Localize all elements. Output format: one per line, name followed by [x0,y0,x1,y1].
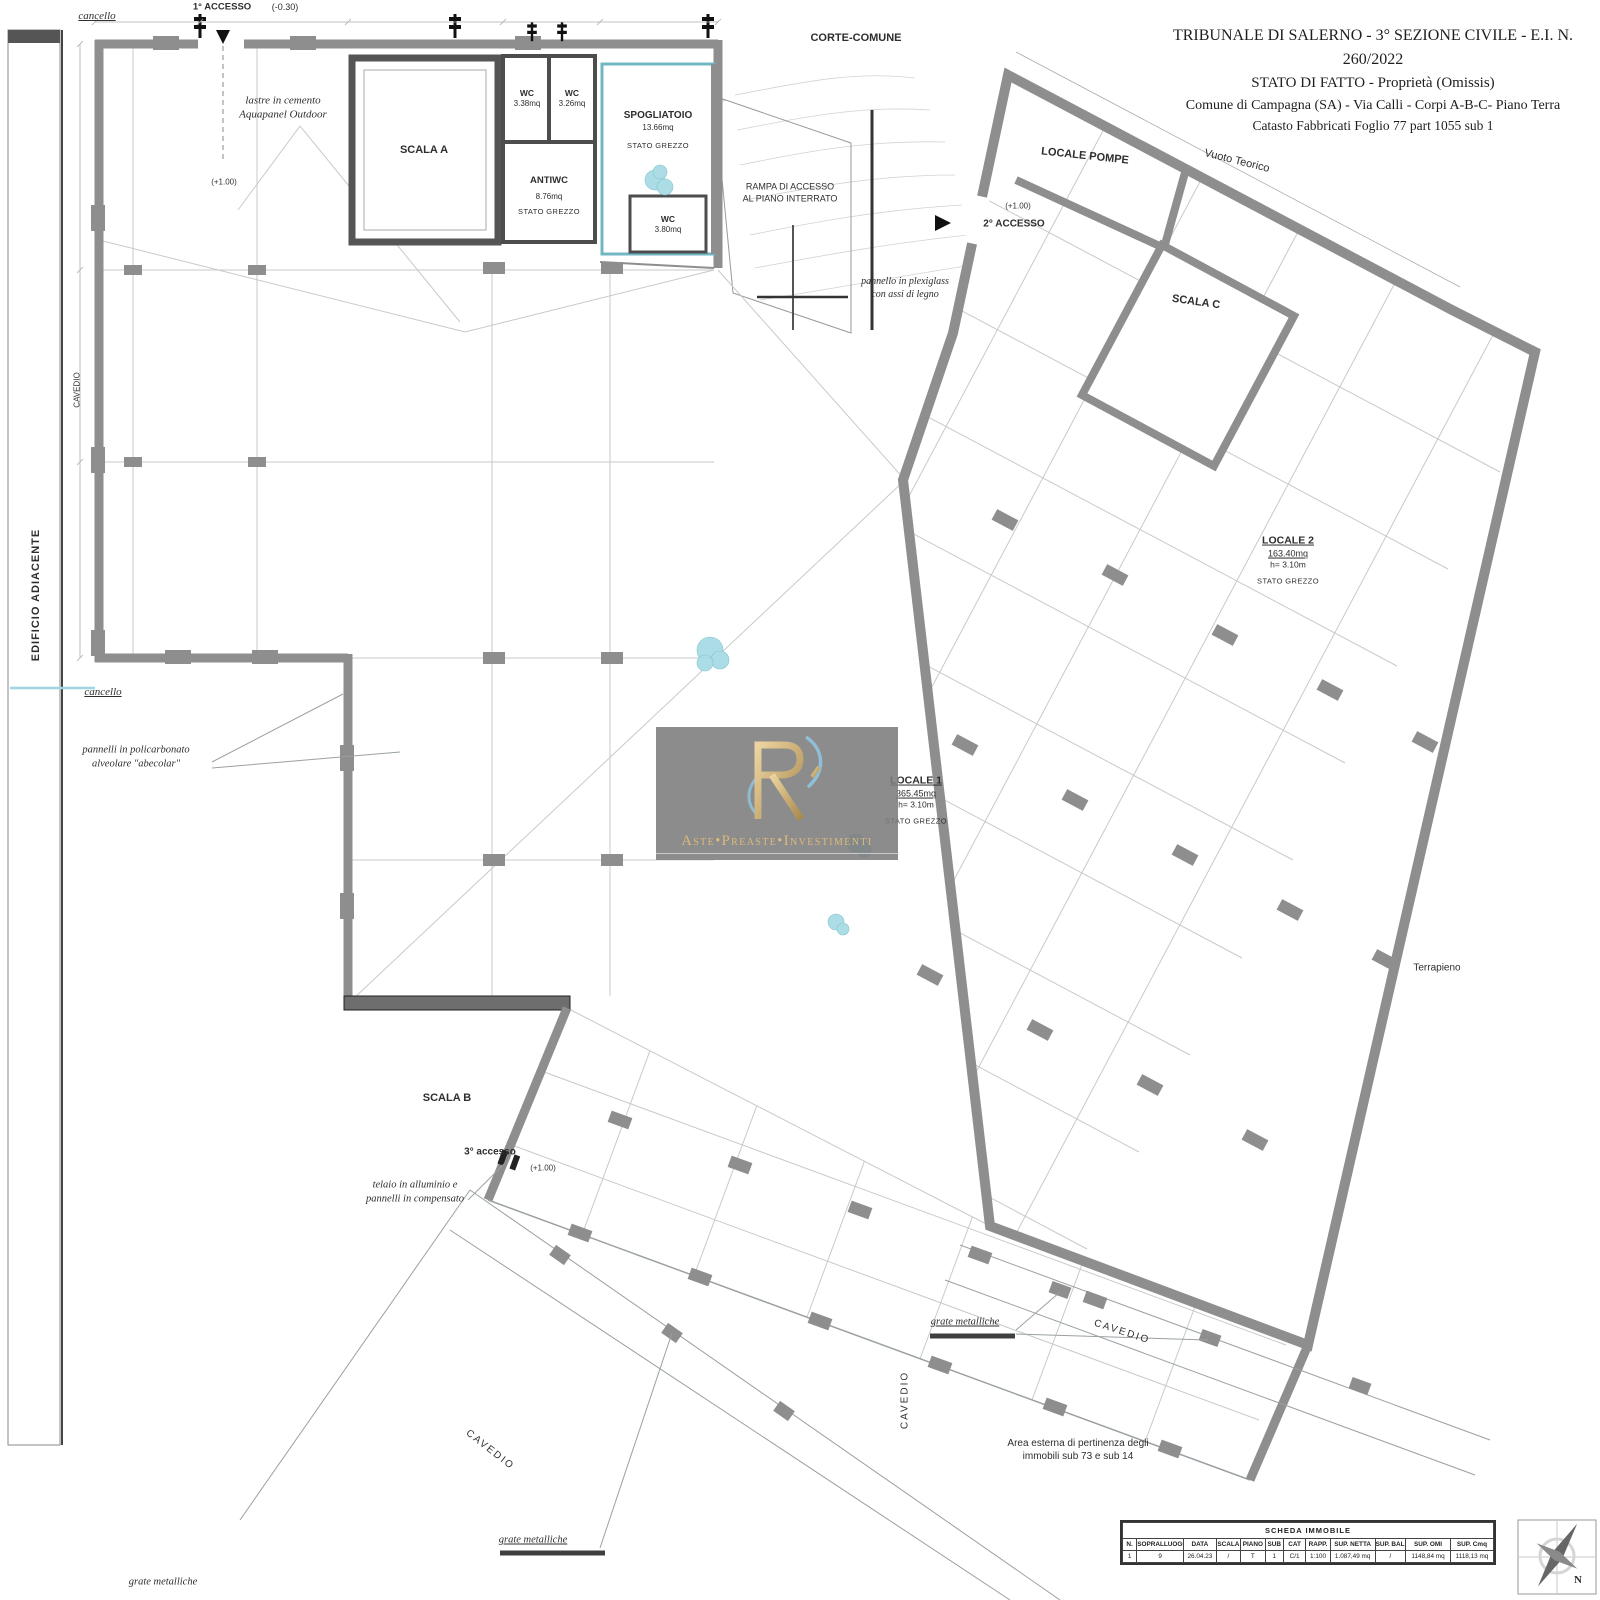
locale2-height: h= 3.10m [1257,560,1319,571]
rampa-1: RAMPA DI ACCESSO [743,181,838,193]
telaio-1: telaio in alluminio e [366,1178,464,1192]
scheda-cell: 1148,84 mq [1406,1551,1451,1563]
label-edificio-adiacente: EDIFICIO ADIACENTE [30,529,42,662]
plexi-2: con assi di legno [861,288,949,301]
title-line-4: Catasto Fabbricati Foglio 77 part 1055 s… [1148,116,1598,136]
accesso-2-arrow-icon [935,215,951,231]
plexi-1: pannello in plexiglass [861,275,949,288]
antiwc-status: STATO GREZZO [518,207,580,217]
label-accesso-2-quota: (+1.00) [1005,202,1031,211]
title-line-1: TRIBUNALE DI SALERNO - 3° SEZIONE CIVILE… [1148,24,1598,72]
watermark: Aste•Preaste•Investimenti [656,727,898,860]
walls-scala-c [1016,169,1294,466]
spogliatoio-status: STATO GREZZO [624,141,693,151]
label-accesso-1: 1° ACCESSO [193,2,251,13]
rampa-2: AL PIANO INTERRATO [743,193,838,205]
label-accesso-2: 2° ACCESSO [983,219,1044,230]
poli-2: alveolare "abecolar" [82,757,189,771]
label-telaio: telaio in alluminio e pannelli in compen… [366,1178,464,1205]
label-lastre: lastre in cemento Aquapanel Outdoor [239,94,327,123]
spogliatoio-name: SPOGLIATOIO [624,109,693,123]
scheda-header: DATA [1184,1539,1217,1551]
scheda-cell: C/1 [1283,1551,1305,1563]
label-cancello-top: cancello [78,10,115,22]
antiwc-area: 8.76mq [518,192,580,203]
label-lastre-2: Aquapanel Outdoor [239,108,327,122]
label-antiwc: ANTIWC 8.76mq STATO GREZZO [518,175,580,217]
label-scala-b: SCALA B [423,1092,471,1104]
wc2-name: WC [559,88,586,99]
scheda-header: SOPRALLUOGO [1137,1539,1184,1551]
label-wc2: WC 3.26mq [559,88,586,110]
title-block: TRIBUNALE DI SALERNO - 3° SEZIONE CIVILE… [1148,24,1598,136]
scheda-data-row: 1 9 26.04.23 / T 1 C/1 1:100 1.087,49 mq… [1123,1551,1494,1563]
scheda-cell: 9 [1137,1551,1184,1563]
locale2-name: LOCALE 2 [1257,534,1319,548]
scheda-header: N. [1123,1539,1137,1551]
wc2-area: 3.26mq [559,99,586,110]
label-rampa: RAMPA DI ACCESSO AL PIANO INTERRATO [743,181,838,204]
scheda-cell: / [1216,1551,1240,1563]
scheda-header: RAPP. [1306,1539,1330,1551]
label-scala-a: SCALA A [400,144,448,156]
scheda-cell: T [1241,1551,1265,1563]
scheda-header-row: N. SOPRALLUOGO DATA SCALA PIANO SUB CAT … [1123,1539,1494,1551]
wc3-name: WC [655,214,682,225]
poli-1: pannelli in policarbonato [82,743,189,757]
gate-post-icons [194,14,714,41]
brand-name: Aste•Preaste•Investimenti [656,833,898,854]
label-corte-comune: CORTE-COMUNE [810,32,901,44]
scheda-header: SUP. NETTA [1330,1539,1375,1551]
label-spogliatoio: SPOGLIATOIO 13.66mq STATO GREZZO [624,109,693,151]
scheda-title: SCHEDA IMMOBILE [1123,1523,1494,1539]
label-area-esterna: Area esterna di pertinenza degli immobil… [1007,1437,1148,1463]
ramp-area [714,96,872,333]
scheda-header: SUP. Cmq [1450,1539,1493,1551]
compass-rose [1518,1520,1596,1594]
label-grate-1: grate metalliche [499,1535,568,1546]
area-esterna-1: Area esterna di pertinenza degli [1007,1437,1148,1450]
scheda-header: SUP. BALC. [1375,1539,1406,1551]
scheda-cell: 1 [1123,1551,1137,1563]
scheda-header: SUP. OMI [1406,1539,1451,1551]
label-accesso-3-quota: (+1.00) [530,1164,556,1173]
scheda-immobile-table: SCHEDA IMMOBILE N. SOPRALLUOGO DATA SCAL… [1120,1520,1496,1565]
label-grate-2: grate metalliche [931,1317,1000,1328]
wc1-area: 3.38mq [514,99,541,110]
label-terrapieno: Terrapieno [1413,963,1460,974]
scheda-cell: 1 [1265,1551,1283,1563]
walls-corpo-c [903,75,1535,1345]
label-wc1: WC 3.38mq [514,88,541,110]
locale2-status: STATO GREZZO [1257,576,1319,586]
floor-plan-page: TRIBUNALE DI SALERNO - 3° SEZIONE CIVILE… [0,0,1600,1600]
spogliatoio-area: 13.66mq [624,122,693,133]
scheda-cell: 1.087,49 mq [1330,1551,1375,1563]
beam-grid-right [487,127,1500,1437]
label-grate-3: grate metalliche [129,1577,198,1588]
watermark-logo [656,727,898,827]
locale2-area: 163.40mq [1257,548,1319,560]
scheda-header: SCALA [1216,1539,1240,1551]
wall-scala-b [344,996,570,1010]
label-locale-2: LOCALE 2 163.40mq h= 3.10m STATO GREZZO [1257,534,1319,587]
scheda-cell: / [1375,1551,1406,1563]
scheda-header: PIANO [1241,1539,1265,1551]
antiwc-name: ANTIWC [518,175,580,188]
area-esterna-2: immobili sub 73 e sub 14 [1007,1450,1148,1463]
label-cancello-left: cancello [84,686,121,698]
title-line-2: STATO DI FATTO - Proprietà (Omissis) [1148,72,1598,95]
label-plexiglass: pannello in plexiglass con assi di legno [861,275,949,301]
label-cavedio-vertical: CAVEDIO [900,1371,911,1429]
label-policarbonato: pannelli in policarbonato alveolare "abe… [82,743,189,770]
label-quota-interna: (+1.00) [211,178,237,187]
beam-grid-wing [509,972,1286,1442]
compass-north-label: N [1574,1574,1582,1586]
label-wc3: WC 3.80mq [655,214,682,236]
brand-monogram-icon [749,737,821,819]
label-cavedio-left: CAVEDIO [73,372,82,407]
scheda-cell: 26.04.23 [1184,1551,1217,1563]
title-line-3: Comune di Campagna (SA) - Via Calli - Co… [1148,95,1598,116]
scheda-header: CAT [1283,1539,1305,1551]
walls-corpo-b [488,1008,1308,1480]
wc1-name: WC [514,88,541,99]
scheda-cell: 1:100 [1306,1551,1330,1563]
label-accesso-1-quota: (-0.30) [272,2,299,12]
scheda-header: SUB [1265,1539,1283,1551]
scheda-cell: 1118,13 mq [1450,1551,1493,1563]
adjacent-building-hatch [8,30,62,1445]
wc3-area: 3.80mq [655,225,682,236]
telaio-2: pannelli in compensato [366,1192,464,1206]
label-lastre-1: lastre in cemento [239,94,327,108]
label-accesso-3: 3° accesso [464,1147,516,1158]
